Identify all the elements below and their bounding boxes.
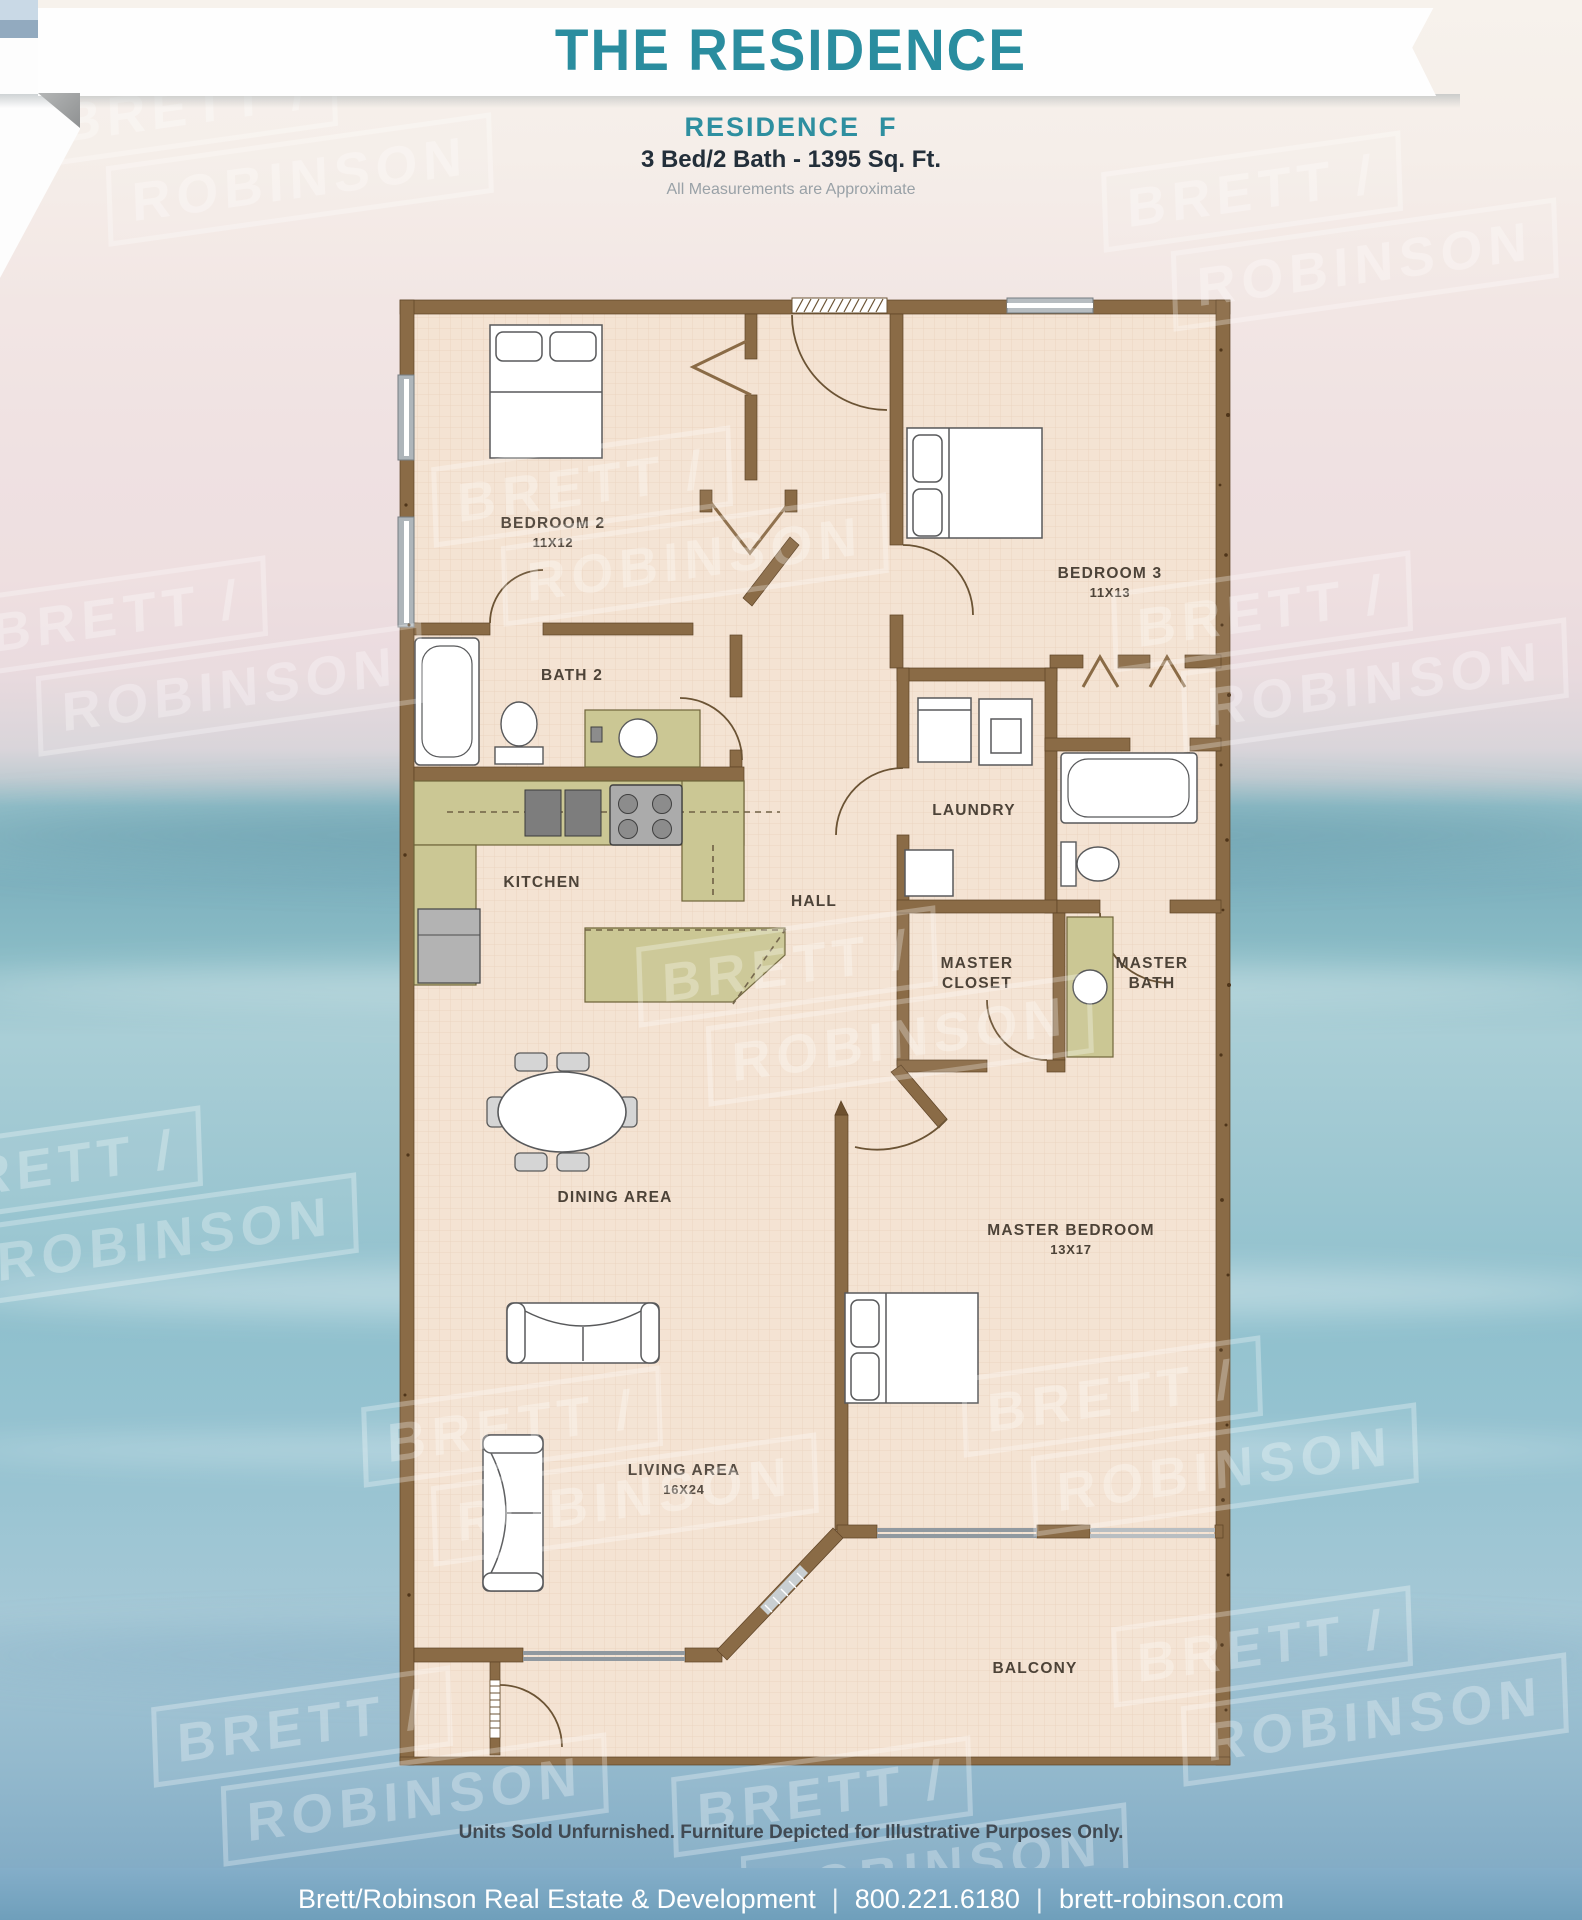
stove: [610, 785, 682, 845]
washer: [918, 698, 971, 762]
bath2-tub: [415, 638, 479, 765]
flyer-page: THE RESIDENCE RESIDENCE F 3 Bed/2 Bath -…: [0, 0, 1582, 1920]
floor-plan: BEDROOM 2 11X12 BEDROOM 3 11X13 BATH 2 K…: [395, 295, 1240, 1775]
footer-separator: |: [816, 1884, 855, 1914]
label-master-closet-2: CLOSET: [942, 975, 1012, 992]
label-balcony: BALCONY: [992, 1660, 1077, 1677]
footer-separator: |: [1020, 1884, 1059, 1914]
disclaimer-text: Units Sold Unfurnished. Furniture Depict…: [0, 1822, 1582, 1844]
master-tub: [1061, 753, 1197, 823]
brand-watermark: BRETT /ROBINSON: [0, 536, 428, 765]
label-dining: DINING AREA: [557, 1189, 672, 1206]
footer-contact: Brett/Robinson Real Estate & Development…: [0, 1884, 1582, 1915]
bed-bedroom2: [490, 325, 602, 458]
label-master-closet-1: MASTER: [941, 955, 1014, 972]
label-hall: HALL: [791, 893, 837, 910]
dryer: [979, 699, 1032, 765]
label-master-bath-2: BATH: [1129, 975, 1176, 992]
label-bath2: BATH 2: [541, 667, 603, 684]
label-master-bedroom: MASTER BEDROOM: [987, 1222, 1155, 1239]
footer-phone: 800.221.6180: [855, 1884, 1020, 1914]
footer-company: Brett/Robinson Real Estate & Development: [298, 1884, 816, 1914]
dims-living: 16X24: [663, 1482, 705, 1497]
label-living: LIVING AREA: [628, 1462, 741, 1479]
bed-bedroom3: [907, 428, 1042, 538]
label-bedroom2: BEDROOM 2: [501, 515, 606, 532]
page-title: THE RESIDENCE: [0, 16, 1582, 84]
brand-watermark: BRETT /ROBINSON: [0, 1086, 363, 1315]
footer-website: brett-robinson.com: [1059, 1884, 1284, 1914]
sofa-horizontal: [507, 1303, 659, 1363]
measurements-note: All Measurements are Approximate: [0, 181, 1582, 199]
label-bedroom3: BEDROOM 3: [1058, 565, 1163, 582]
label-laundry: LAUNDRY: [932, 802, 1016, 819]
sofa-vertical: [483, 1435, 543, 1591]
bed-master: [845, 1293, 978, 1403]
bath2-vanity: [585, 710, 700, 767]
refrigerator: [418, 909, 480, 983]
residence-label: RESIDENCE F: [0, 112, 1582, 143]
dims-master-bedroom: 13X17: [1050, 1242, 1092, 1257]
specs-label: 3 Bed/2 Bath - 1395 Sq. Ft.: [0, 146, 1582, 174]
dims-bedroom2: 11X12: [533, 535, 574, 550]
label-master-bath-1: MASTER: [1116, 955, 1189, 972]
label-kitchen: KITCHEN: [503, 874, 580, 891]
banner-shadow: [0, 94, 1460, 108]
laundry-table: [905, 850, 953, 896]
dims-bedroom3: 11X13: [1090, 585, 1131, 600]
master-vanity: [1067, 917, 1113, 1057]
